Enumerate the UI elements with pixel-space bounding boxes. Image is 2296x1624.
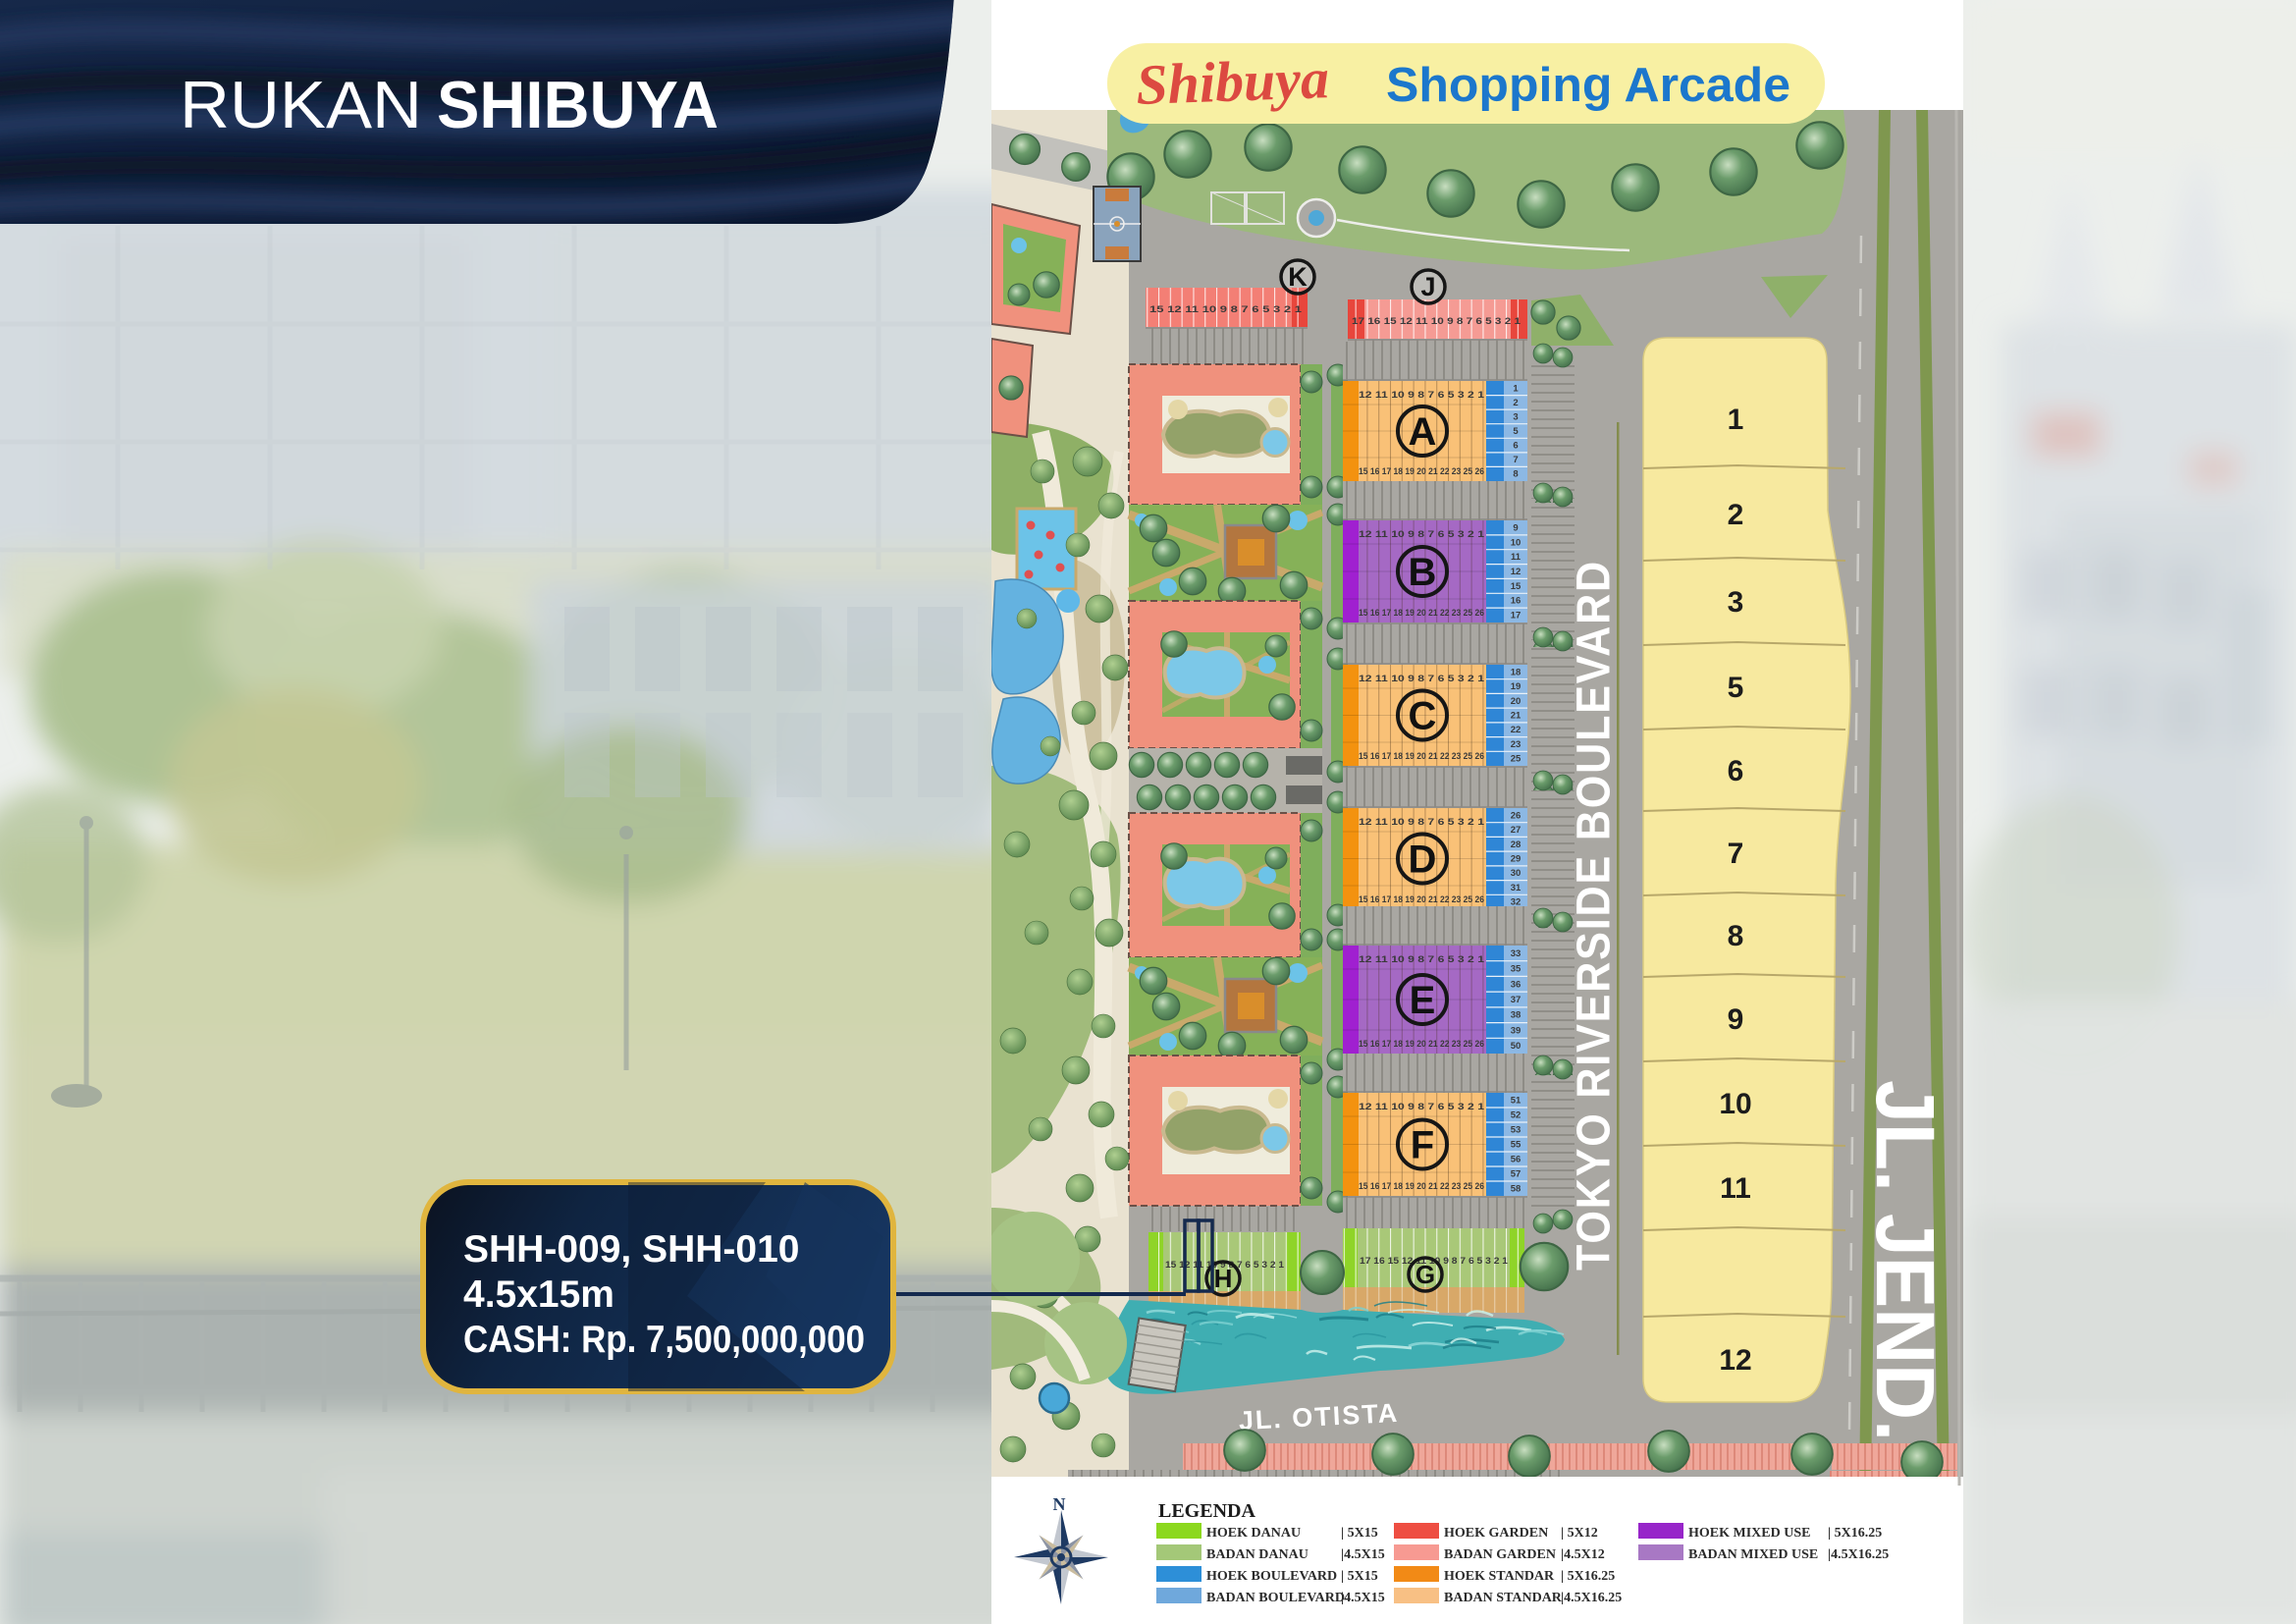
svg-text:LEGENDA: LEGENDA: [1158, 1500, 1255, 1522]
svg-text:9: 9: [1728, 1003, 1744, 1036]
svg-text:4.5x15m: 4.5x15m: [463, 1273, 614, 1316]
svg-text:BADAN STANDAR: BADAN STANDAR: [1444, 1591, 1563, 1605]
svg-text:26272829303132: 26272829303132: [1511, 810, 1522, 907]
svg-text:HOEK DANAU: HOEK DANAU: [1206, 1526, 1301, 1541]
svg-text:12 11 10 9 8 7 6 5 3 2 1: 12 11 10 9 8 7 6 5 3 2 1: [1359, 390, 1485, 401]
svg-text:N: N: [1053, 1494, 1066, 1514]
svg-text:15 16 17 18 19 20 21 22 23 25: 15 16 17 18 19 20 21 22 23 25 26: [1359, 751, 1484, 762]
svg-text:D: D: [1409, 839, 1437, 882]
svg-text:15 12 11 10 9 8 7 6 5 3 2 1: 15 12 11 10 9 8 7 6 5 3 2 1: [1149, 304, 1303, 315]
svg-text:HOEK GARDEN: HOEK GARDEN: [1444, 1526, 1548, 1541]
svg-text:F: F: [1411, 1124, 1434, 1167]
svg-text:HOEK STANDAR: HOEK STANDAR: [1444, 1569, 1555, 1584]
svg-text:|4.5X15: |4.5X15: [1341, 1547, 1385, 1562]
svg-text:Shopping Arcade: Shopping Arcade: [1386, 59, 1790, 112]
svg-text:HOEK MIXED USE: HOEK MIXED USE: [1688, 1526, 1810, 1541]
svg-text:2: 2: [1728, 499, 1744, 531]
svg-text:|4.5X16.25: |4.5X16.25: [1561, 1591, 1622, 1605]
svg-text:| 5X16.25: | 5X16.25: [1828, 1526, 1882, 1541]
svg-text:| 5X15: | 5X15: [1341, 1526, 1378, 1541]
svg-text:10: 10: [1719, 1088, 1751, 1120]
svg-text:15 16 17 18 19 20 21 22 23 25: 15 16 17 18 19 20 21 22 23 25 26: [1359, 894, 1484, 905]
svg-text:9101112151617: 9101112151617: [1511, 522, 1522, 621]
svg-text:CASH: Rp. 7,500,000,000: CASH: Rp. 7,500,000,000: [463, 1319, 865, 1361]
svg-text:BADAN GARDEN: BADAN GARDEN: [1444, 1547, 1556, 1562]
svg-text:5: 5: [1728, 672, 1744, 704]
svg-text:12 11 10 9 8 7 6 5 3 2 1: 12 11 10 9 8 7 6 5 3 2 1: [1359, 954, 1485, 965]
svg-text:18192021222325: 18192021222325: [1511, 667, 1522, 764]
svg-text:TOKYO RIVERSIDE BOULEVARD: TOKYO RIVERSIDE BOULEVARD: [1569, 560, 1621, 1271]
svg-text:BADAN BOULEVARD: BADAN BOULEVARD: [1206, 1591, 1345, 1605]
svg-text:|4.5X16.25: |4.5X16.25: [1828, 1547, 1889, 1562]
svg-text:RUKANSHIBUYA: RUKANSHIBUYA: [180, 68, 719, 142]
svg-text:BADAN DANAU: BADAN DANAU: [1206, 1547, 1308, 1562]
svg-text:|4.5X12: |4.5X12: [1561, 1547, 1605, 1562]
svg-text:8: 8: [1728, 920, 1744, 952]
svg-text:17 16 15 12 11 10 9 8 7 6 5 3: 17 16 15 12 11 10 9 8 7 6 5 3 2 1: [1352, 316, 1522, 327]
svg-text:15 16 17 18 19 20 21 22 23 25: 15 16 17 18 19 20 21 22 23 25 26: [1359, 1039, 1484, 1050]
svg-text:|4.5X15: |4.5X15: [1341, 1591, 1385, 1605]
svg-text:G: G: [1415, 1260, 1435, 1289]
svg-text:A: A: [1409, 410, 1437, 454]
svg-text:1235678: 1235678: [1513, 383, 1519, 479]
svg-text:B: B: [1409, 551, 1437, 594]
svg-text:H: H: [1214, 1264, 1233, 1293]
svg-text:7: 7: [1728, 838, 1744, 870]
svg-text:| 5X16.25: | 5X16.25: [1561, 1569, 1615, 1584]
svg-text:33353637383950: 33353637383950: [1511, 948, 1522, 1052]
svg-text:E: E: [1410, 979, 1436, 1022]
svg-text:51525355565758: 51525355565758: [1511, 1096, 1522, 1195]
svg-text:| 5X15: | 5X15: [1341, 1569, 1378, 1584]
svg-text:12 11 10 9 8 7 6 5 3 2 1: 12 11 10 9 8 7 6 5 3 2 1: [1359, 674, 1485, 684]
svg-text:12 11 10 9 8 7 6 5 3 2 1: 12 11 10 9 8 7 6 5 3 2 1: [1359, 529, 1485, 540]
svg-text:J: J: [1420, 272, 1435, 301]
svg-text:SHH-009, SHH-010: SHH-009, SHH-010: [463, 1228, 799, 1271]
svg-text:15 16 17 18 19 20 21 22 23 25: 15 16 17 18 19 20 21 22 23 25 26: [1359, 466, 1484, 477]
svg-text:| 5X12: | 5X12: [1561, 1526, 1598, 1541]
svg-text:C: C: [1409, 695, 1437, 738]
svg-text:BADAN MIXED USE: BADAN MIXED USE: [1688, 1547, 1818, 1562]
svg-text:3: 3: [1728, 586, 1744, 619]
svg-text:15 16 17 18 19 20 21 22 23 25: 15 16 17 18 19 20 21 22 23 25 26: [1359, 1181, 1484, 1192]
svg-text:HOEK BOULEVARD: HOEK BOULEVARD: [1206, 1569, 1337, 1584]
svg-text:11: 11: [1720, 1172, 1751, 1205]
svg-text:12 11 10 9 8 7 6 5 3 2 1: 12 11 10 9 8 7 6 5 3 2 1: [1359, 817, 1485, 828]
svg-text:12: 12: [1719, 1344, 1751, 1377]
svg-text:K: K: [1288, 262, 1308, 292]
svg-text:1: 1: [1728, 404, 1744, 436]
svg-text:12 11 10 9 8 7 6 5 3 2 1: 12 11 10 9 8 7 6 5 3 2 1: [1359, 1102, 1485, 1112]
svg-text:Shibuya: Shibuya: [1135, 46, 1330, 117]
svg-text:15 16 17 18 19 20 21 22 23 25: 15 16 17 18 19 20 21 22 23 25 26: [1359, 608, 1484, 619]
svg-text:JL. JEND.: JL. JEND.: [1859, 1080, 1951, 1441]
svg-text:6: 6: [1728, 755, 1744, 787]
